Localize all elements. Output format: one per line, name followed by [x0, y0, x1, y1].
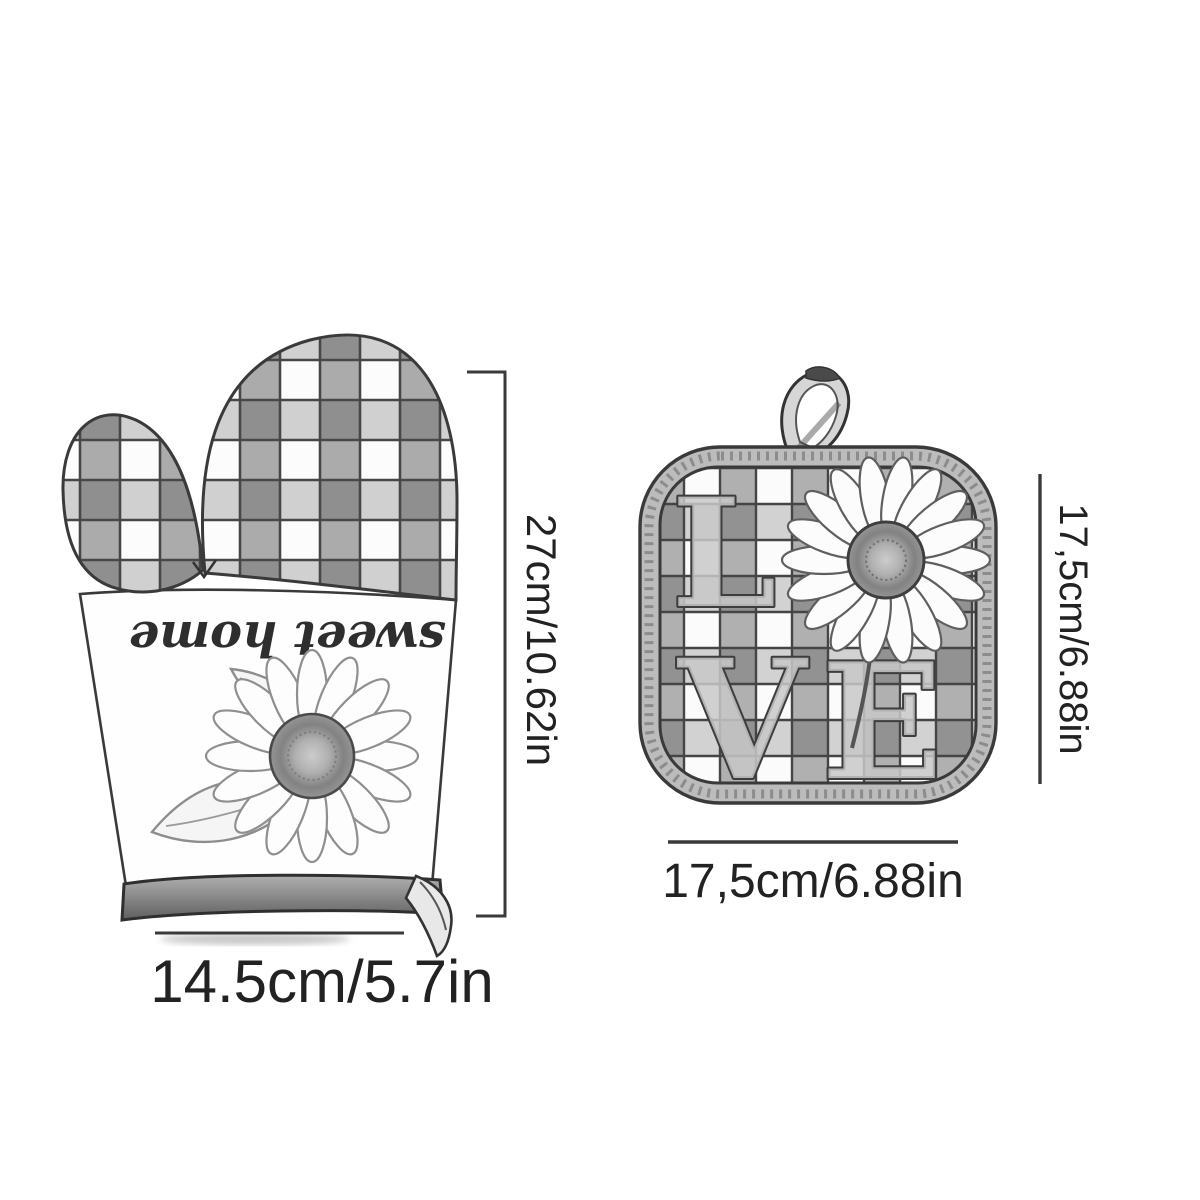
holder-height-measure: 17,5cm/6.88in [1040, 474, 1095, 784]
product-dimension-diagram: sweet home [0, 0, 1200, 1200]
sunflower-center [270, 714, 354, 798]
mitt-hand-gingham [202, 335, 457, 600]
mitt-cuff-band [122, 875, 443, 920]
mitt-print-text: sweet home [129, 610, 447, 666]
mitt-height-measure: 27cm/10.62in [467, 372, 565, 916]
sunflower-center [848, 522, 924, 598]
hanging-loop-icon [406, 876, 451, 956]
diagram-canvas: sweet home [0, 0, 1200, 1200]
mitt-width-label: 14.5cm/5.7in [150, 948, 494, 1015]
love-letter-v: V [677, 623, 809, 817]
pot-holder: L V E [640, 367, 996, 817]
height-bracket [467, 372, 505, 916]
holder-width-label: 17,5cm/6.88in [662, 855, 964, 908]
mitt-height-label: 27cm/10.62in [518, 514, 565, 766]
love-letter-l: L [671, 466, 776, 642]
hanging-loop-icon [782, 367, 849, 457]
oven-mitt: sweet home [63, 335, 457, 956]
mitt-shadow [160, 933, 350, 945]
love-letter-e: E [821, 628, 943, 816]
mitt-thumb-gingham [63, 415, 203, 592]
holder-width-measure: 17,5cm/6.88in [662, 842, 964, 908]
holder-height-label: 17,5cm/6.88in [1051, 503, 1095, 754]
